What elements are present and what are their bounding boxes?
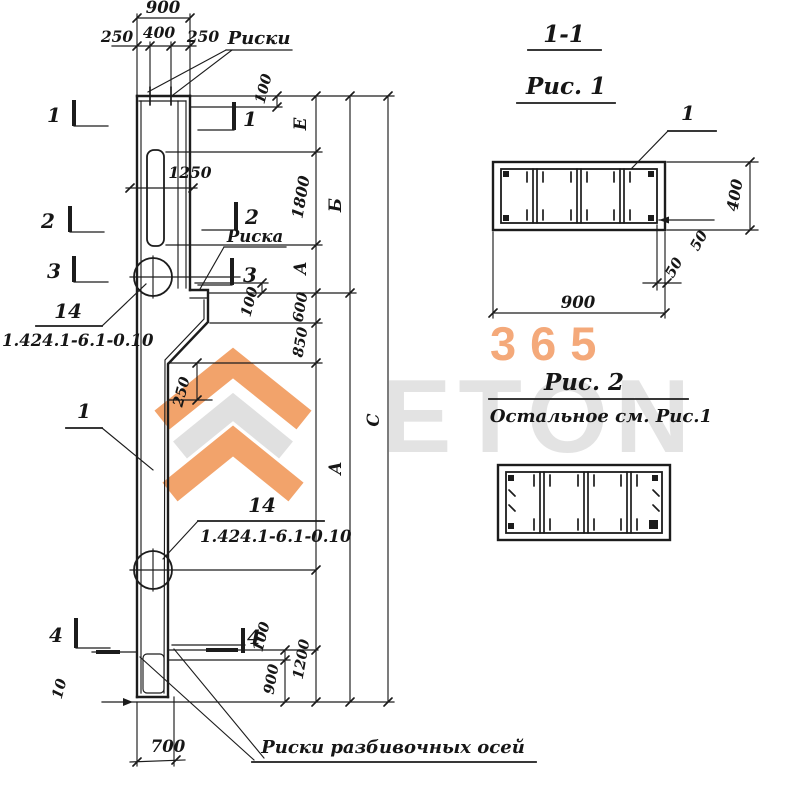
dim-A-lower: А: [326, 461, 345, 475]
label-series-ref-lower: 1.424.1-6.1-0.10: [200, 527, 352, 546]
dim-10: 10: [49, 677, 71, 701]
dim-1200: 1200: [290, 638, 314, 681]
dim-top-400: 400: [143, 23, 176, 42]
label-14-upper: 14: [54, 299, 82, 323]
fig2-section: [498, 465, 670, 540]
section-mark-4-left: 4: [49, 623, 63, 647]
section-mark-1-right: 1: [243, 107, 257, 131]
title-fig1: Рис. 1: [525, 73, 606, 100]
dim-100-mid: 100: [238, 285, 262, 319]
section-mark-2-left: 2: [40, 209, 55, 233]
dim-A-upper: А: [291, 261, 310, 275]
dim-E: Е: [291, 117, 310, 131]
section-mark-2-right: 2: [244, 205, 259, 229]
label-riski-top: Риски: [227, 28, 291, 49]
label-pos-1: 1: [77, 399, 91, 423]
label-fig1-pos-1: 1: [681, 101, 695, 125]
label-axes-note: Риски разбивочных осей: [260, 737, 525, 758]
dim-top-250-right: 250: [186, 27, 220, 46]
dim-100-top: 100: [252, 72, 276, 106]
section-mark-3-left: 3: [47, 259, 61, 283]
dim-C: С: [364, 413, 383, 426]
title-fig2-note: Остальное см. Рис.1: [490, 406, 712, 427]
dim-fig1-400: 400: [722, 177, 746, 212]
dim-top-900: 900: [146, 0, 181, 17]
section-mark-3-right: 3: [243, 263, 257, 287]
lifting-slot: [147, 150, 164, 246]
dim-900-bottom: 900: [261, 663, 283, 696]
column-outline: [96, 87, 238, 697]
dim-fig1-50a: 50: [687, 228, 712, 254]
label-14-lower: 14: [248, 493, 276, 517]
rebar-hooks-fig1: [527, 172, 630, 220]
bottom-recess: [143, 654, 164, 693]
dim-fig1-900: 900: [561, 293, 596, 312]
dim-1800: 1800: [287, 174, 313, 220]
title-section-1-1: 1-1: [543, 21, 585, 48]
technical-drawing-canvas: 365 ETON: [0, 0, 800, 800]
label-series-ref-upper: 1.424.1-6.1-0.10: [2, 331, 154, 350]
dim-B: Б: [326, 198, 345, 213]
dim-1250: 1250: [168, 163, 211, 182]
drawing-sheet: 365 ETON: [0, 0, 800, 800]
section-mark-4-right: 4: [247, 625, 261, 649]
dim-600: 600: [290, 291, 312, 324]
dim-850: 850: [290, 326, 312, 359]
dim-700: 700: [151, 737, 186, 756]
dim-arrow-10: [123, 698, 133, 706]
section-mark-1-left: 1: [47, 103, 61, 127]
dim-top-250-left: 250: [100, 27, 134, 46]
title-fig2: Рис. 2: [543, 369, 624, 396]
label-riska: Риска: [226, 227, 283, 246]
fig1-section: 1 400 50 50 900: [489, 101, 758, 318]
